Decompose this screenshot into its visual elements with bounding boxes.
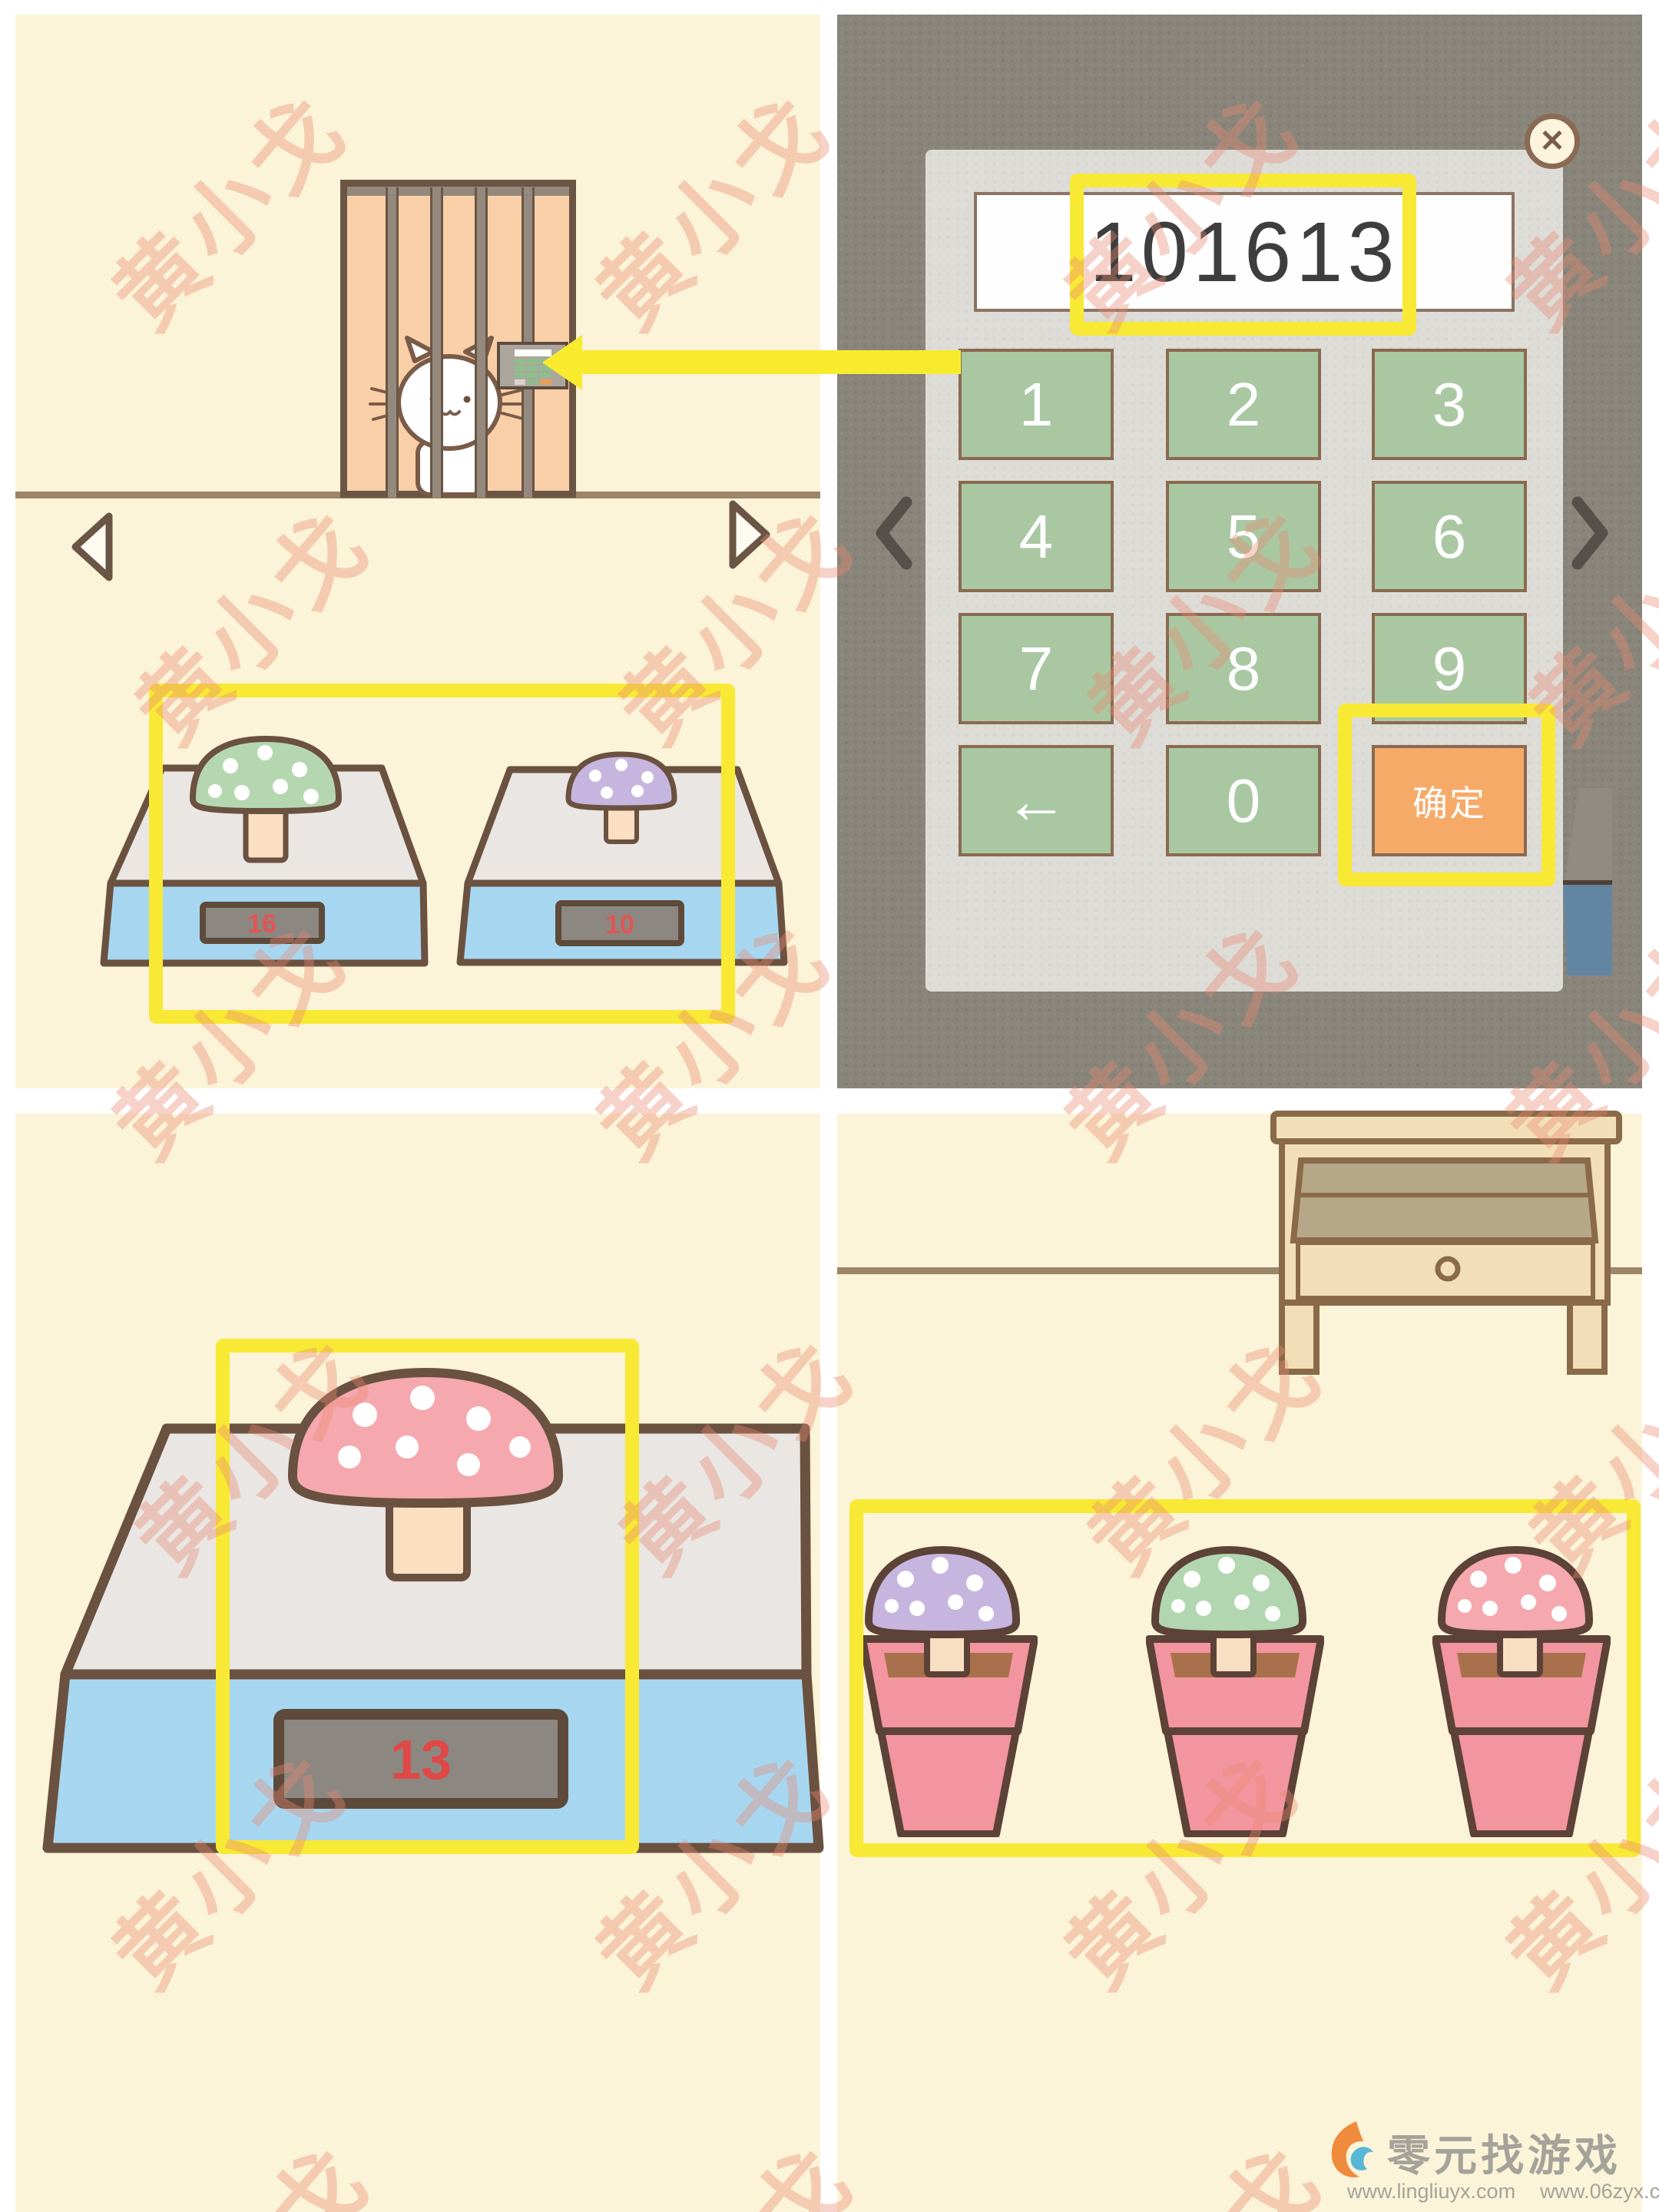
key-label: 8 <box>1227 634 1261 704</box>
nav-left-button[interactable] <box>68 512 117 582</box>
triangle-left-icon <box>75 516 109 578</box>
code-input-value: 101613 <box>1089 204 1399 301</box>
cage-bar <box>475 187 488 498</box>
key-5[interactable]: 5 <box>1166 481 1321 592</box>
brand-logo: 零元找游戏 www.lingliuyx.comwww.06zyx.com <box>1316 2117 1651 2209</box>
key-7[interactable]: 7 <box>959 613 1114 724</box>
chevron-left-icon <box>882 502 906 564</box>
drawer-leg <box>1282 1303 1316 1372</box>
nav-right-button[interactable] <box>725 499 774 570</box>
cage-bar <box>430 187 443 498</box>
key-label: 4 <box>1019 502 1054 572</box>
cage-top-beam <box>347 187 569 196</box>
key-2[interactable]: 2 <box>1166 349 1321 460</box>
key-0[interactable]: 0 <box>1166 745 1321 856</box>
pot-mushroom-green[interactable] <box>1146 1541 1324 1837</box>
cage-bar <box>386 187 399 498</box>
key-label: 7 <box>1019 634 1054 704</box>
brand-url: www.lingliuyx.com <box>1347 2180 1515 2203</box>
triangle-right-icon <box>733 504 767 565</box>
pot-body <box>1454 1731 1589 1834</box>
drawer-top <box>1273 1114 1619 1141</box>
backspace-icon: ← <box>1004 763 1068 838</box>
flame-icon <box>1323 2118 1382 2181</box>
key-9[interactable]: 9 <box>1372 613 1527 724</box>
key-label: 9 <box>1432 634 1467 704</box>
key-6[interactable]: 6 <box>1372 481 1527 592</box>
key-label: 6 <box>1432 502 1467 572</box>
close-button[interactable]: ✕ <box>1525 114 1580 169</box>
pot-mushroom-pink[interactable] <box>1432 1541 1611 1837</box>
mushroom-stem <box>389 1497 467 1578</box>
drawer-open-slot <box>1293 1161 1595 1240</box>
chevron-right-icon <box>1578 502 1602 564</box>
brand-urls: www.lingliuyx.comwww.06zyx.com <box>1347 2180 1659 2204</box>
key-1[interactable]: 1 <box>959 349 1114 460</box>
confirm-label: 确定 <box>1412 776 1486 826</box>
pot-body <box>881 1731 1016 1834</box>
key-label: 1 <box>1019 369 1054 440</box>
mushroom-purple[interactable] <box>565 747 680 846</box>
nav-chevron-left[interactable] <box>873 496 916 570</box>
scale-reading: 10 <box>605 910 634 939</box>
brand-name: 零元找游戏 <box>1387 2121 1621 2184</box>
lock-screen <box>515 349 551 356</box>
key-label: 3 <box>1432 369 1467 440</box>
mushroom-pink-big[interactable] <box>280 1361 572 1591</box>
key-label: 2 <box>1227 369 1261 440</box>
key-backspace[interactable]: ← <box>959 745 1114 856</box>
nav-chevron-right[interactable] <box>1568 496 1611 570</box>
key-label: 5 <box>1227 502 1261 572</box>
mushroom-green[interactable] <box>188 731 346 866</box>
key-confirm[interactable]: 确定 <box>1372 745 1527 856</box>
key-label: 0 <box>1227 766 1261 836</box>
pot-mushroom-purple[interactable] <box>859 1541 1038 1837</box>
walkthrough-collage: 16 10 ✕ <box>0 0 1659 2212</box>
hint-arrow <box>578 350 961 374</box>
key-3[interactable]: 3 <box>1372 349 1527 460</box>
drawer[interactable] <box>1267 1109 1628 1378</box>
key-4[interactable]: 4 <box>959 481 1114 592</box>
key-8[interactable]: 8 <box>1166 613 1321 724</box>
scale-fragment-base <box>1563 885 1612 975</box>
drawer-knob[interactable] <box>1438 1259 1458 1279</box>
pot-body <box>1167 1731 1303 1834</box>
scale-reading: 16 <box>247 909 276 939</box>
brand-url: www.06zyx.com <box>1540 2180 1659 2203</box>
drawer-leg <box>1570 1303 1604 1372</box>
close-icon: ✕ <box>1539 124 1565 159</box>
cat-eye <box>464 396 471 403</box>
code-input[interactable]: 101613 <box>974 192 1515 312</box>
scale-reading: 13 <box>390 1730 452 1791</box>
